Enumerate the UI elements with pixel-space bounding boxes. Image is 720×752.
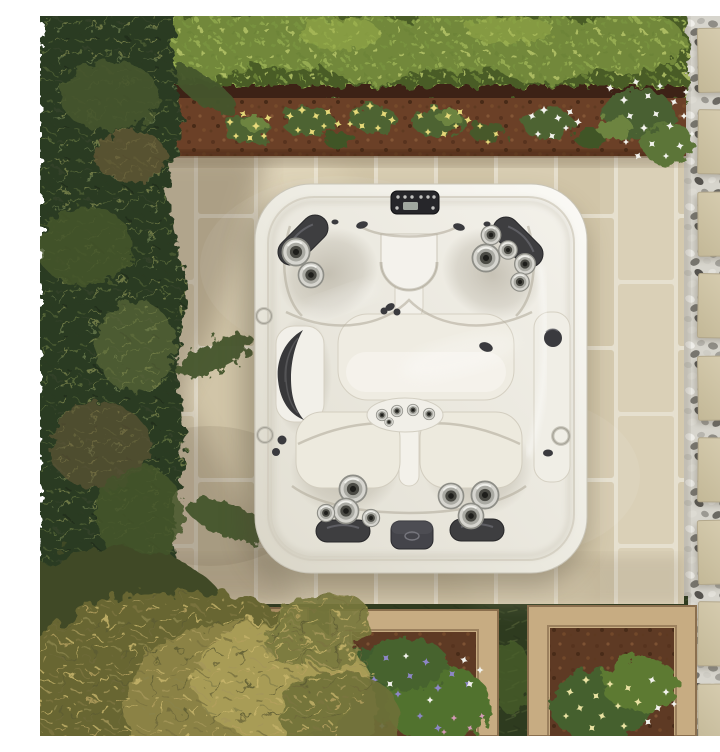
panel-display — [403, 202, 418, 210]
stepping-stone — [695, 110, 720, 179]
planter-box-right — [528, 606, 696, 736]
knob — [278, 436, 287, 445]
hydro-jet — [499, 241, 517, 259]
hydro-jet — [298, 262, 323, 287]
hydro-jet — [333, 498, 358, 523]
stepping-stone — [694, 519, 720, 588]
stepping-stone — [694, 273, 720, 342]
stepping-stone — [695, 438, 720, 507]
knob — [484, 222, 491, 227]
stepping-stone — [695, 192, 720, 260]
hydro-jet — [472, 244, 499, 271]
hydro-jet — [481, 225, 501, 245]
knob — [381, 308, 388, 315]
stepping-stone — [694, 602, 720, 671]
stepping-stones — [694, 27, 720, 736]
hydro-jet — [407, 404, 419, 416]
stepping-stone — [694, 27, 720, 96]
hydro-jet — [282, 238, 309, 265]
knob — [543, 450, 553, 457]
hydro-jet — [385, 418, 394, 427]
backyard-hot-tub-scene: Overhead aerial view of a white four-sea… — [40, 16, 720, 736]
hydro-jet — [438, 483, 463, 508]
hydro-jet — [458, 503, 483, 528]
hydro-jet — [515, 254, 536, 275]
hydro-jet — [511, 273, 529, 291]
patio-light — [600, 150, 684, 604]
knob — [332, 220, 339, 225]
hydro-jet — [423, 408, 435, 420]
scene-svg — [40, 16, 720, 736]
filter-lid — [391, 521, 433, 549]
control-panel — [391, 191, 439, 214]
hydro-jet — [317, 504, 334, 521]
foliage-clump — [324, 131, 356, 149]
hot-tub — [243, 184, 587, 586]
stepping-stone — [695, 356, 720, 425]
floor-jet-pod — [367, 398, 443, 432]
stepping-stone — [695, 684, 720, 736]
hydro-jet — [362, 509, 379, 526]
knob — [394, 309, 401, 316]
knob — [272, 448, 280, 456]
hydro-jet — [391, 405, 403, 417]
